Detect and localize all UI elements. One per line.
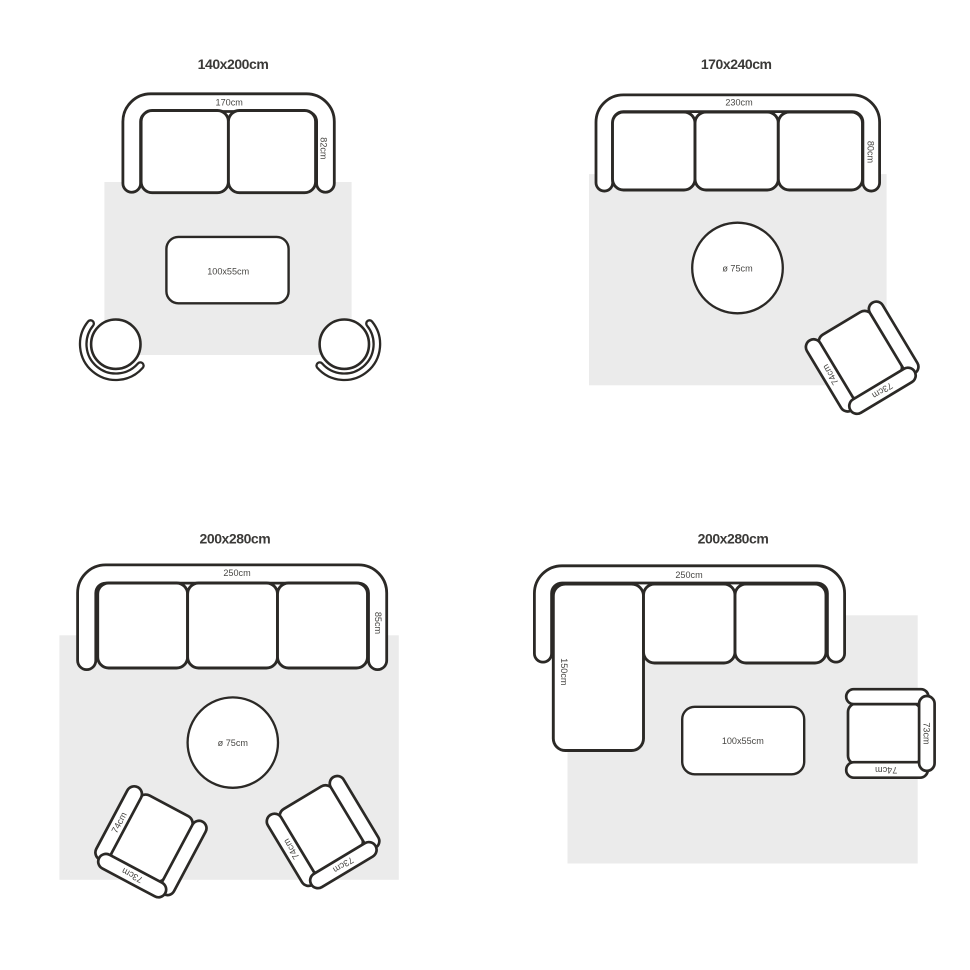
svg-text:230cm: 230cm — [725, 98, 752, 108]
svg-text:ø 75cm: ø 75cm — [722, 264, 752, 274]
svg-text:100x55cm: 100x55cm — [722, 736, 764, 746]
svg-text:ø 75cm: ø 75cm — [218, 738, 248, 748]
svg-text:250cm: 250cm — [675, 570, 702, 580]
svg-text:200x280cm: 200x280cm — [200, 530, 271, 546]
svg-text:250cm: 250cm — [223, 568, 250, 578]
svg-text:140x200cm: 140x200cm — [198, 56, 269, 72]
svg-text:85cm: 85cm — [373, 612, 383, 634]
svg-text:170x240cm: 170x240cm — [701, 56, 772, 72]
svg-text:200x280cm: 200x280cm — [698, 530, 769, 546]
svg-text:150cm: 150cm — [559, 658, 569, 685]
svg-text:80cm: 80cm — [866, 141, 876, 163]
svg-text:82cm: 82cm — [319, 137, 329, 159]
svg-text:100x55cm: 100x55cm — [207, 266, 249, 276]
svg-text:170cm: 170cm — [216, 98, 243, 108]
